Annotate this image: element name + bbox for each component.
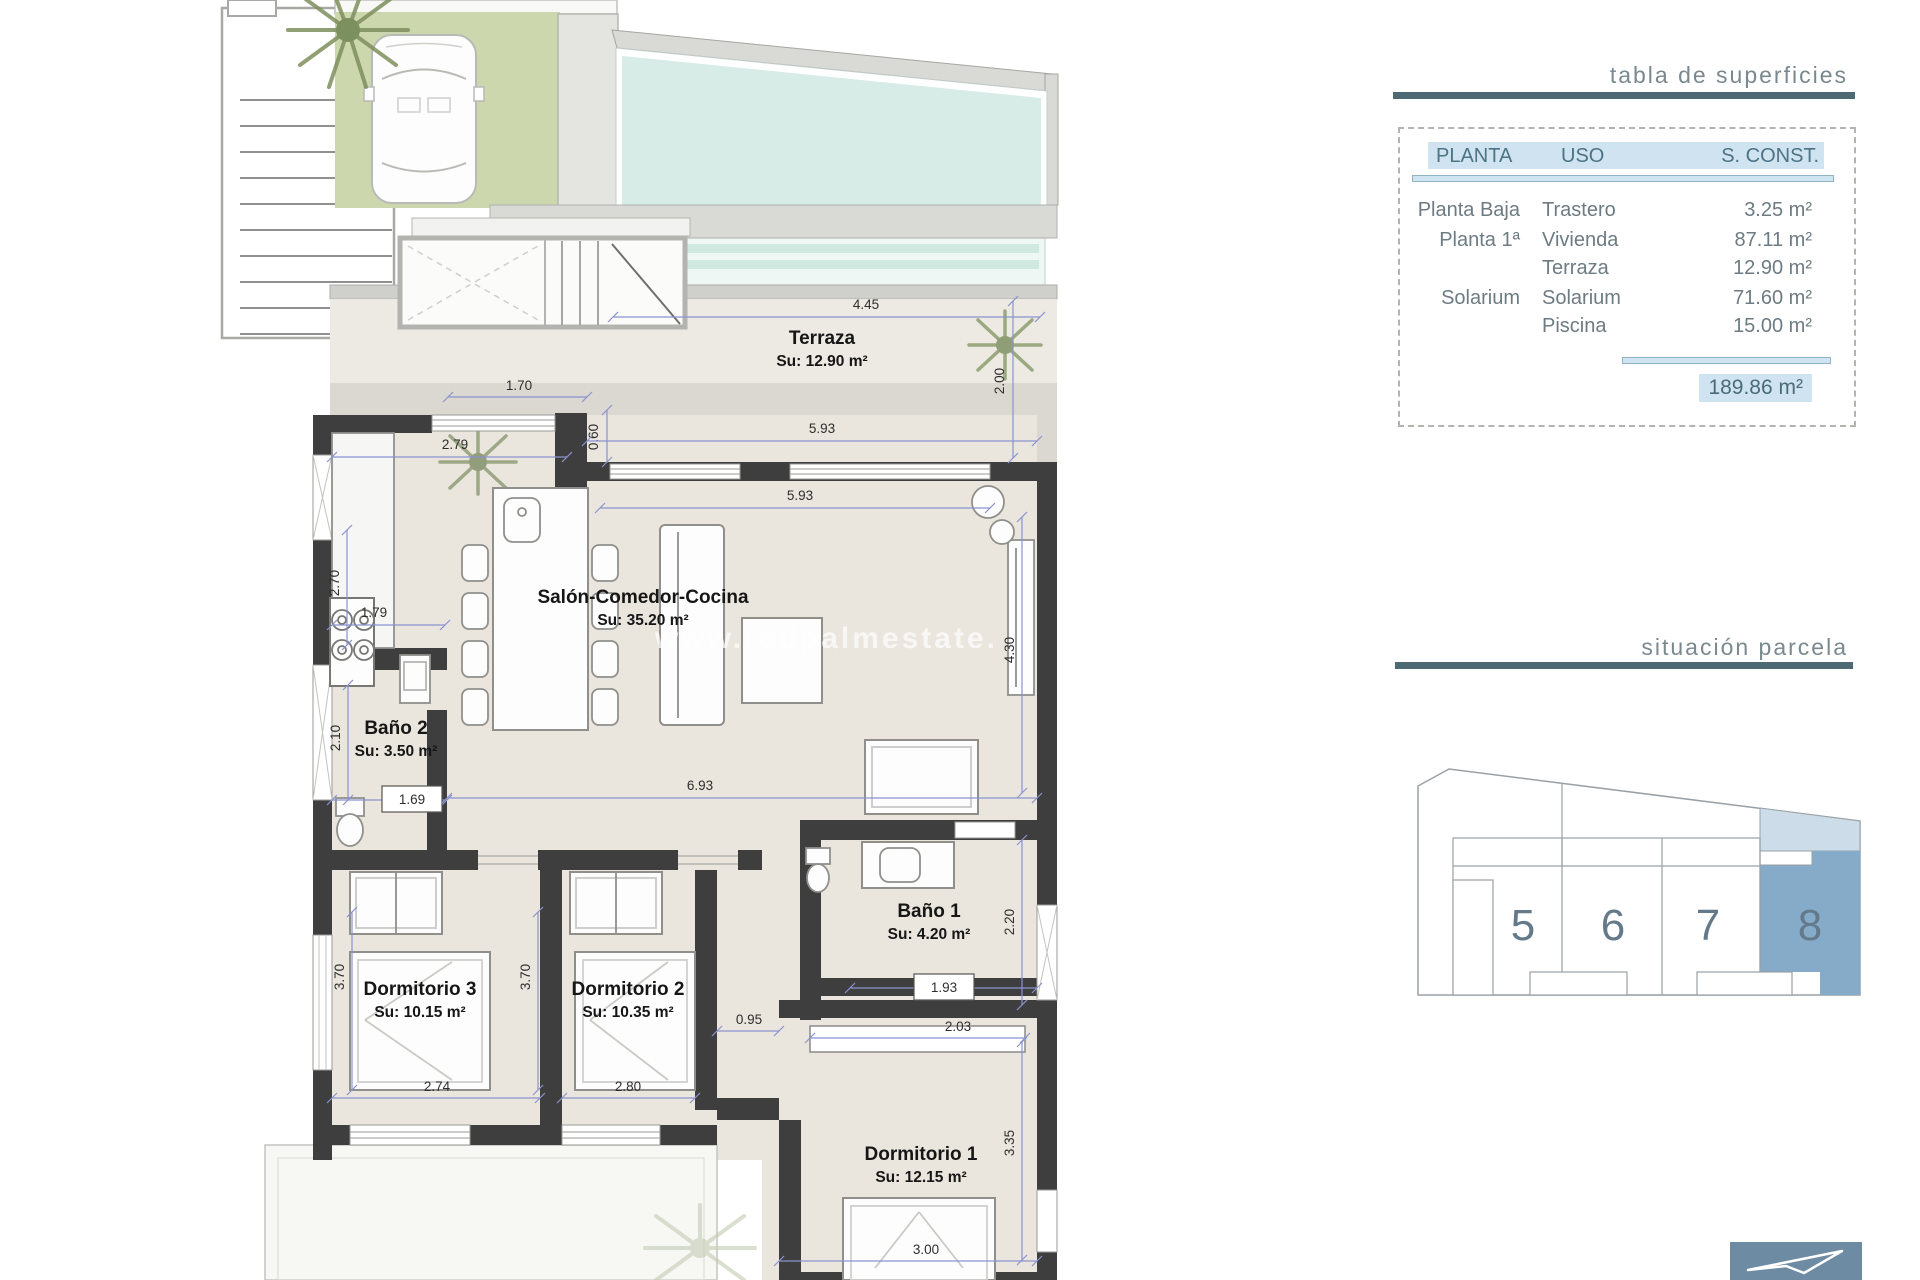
surface-row: Planta 1ªVivienda87.11 m² [1400, 229, 1854, 253]
dimension-label: 2.80 [615, 1079, 641, 1094]
plot-number: 6 [1601, 901, 1625, 950]
surface-cell: 15.00 m² [1733, 315, 1812, 338]
dimension-label: 2.03 [945, 1019, 971, 1034]
room-area: Su: 12.90 m² [776, 353, 867, 370]
surface-table-title: tabla de superficies [1610, 62, 1848, 89]
surface-cell: Solarium [1400, 287, 1520, 310]
room-area: Su: 10.35 m² [582, 1004, 673, 1021]
bed-icon [575, 952, 695, 1090]
header-sconst: S. CONST. [1721, 145, 1819, 168]
floorplan-page: 4.452.001.700.605.935.932.792.701.792.10… [0, 0, 1920, 1280]
parcel-diagram: 5678 [1418, 769, 1860, 995]
header-rule [1412, 175, 1834, 182]
parcel-title-rule [1395, 662, 1853, 669]
dimension-label: 3.70 [332, 964, 347, 990]
shower-icon [865, 740, 978, 814]
surface-row: Terraza12.90 m² [1400, 257, 1854, 281]
dimension-label: 0.95 [736, 1012, 762, 1027]
pool [612, 30, 1058, 205]
dimension-label: 4.45 [853, 297, 879, 312]
surface-cell: 71.60 m² [1733, 287, 1812, 310]
surface-cell: Planta Baja [1400, 199, 1520, 222]
dimension-label: 4.30 [1002, 637, 1017, 663]
surface-cell: Solarium [1542, 287, 1621, 310]
dimension-label: 3.35 [1002, 1130, 1017, 1156]
rear-terrace [265, 1145, 717, 1280]
surface-cell: 87.11 m² [1735, 229, 1812, 252]
surface-cell: Vivienda [1542, 229, 1618, 252]
parcel-title: situación parcela [1641, 634, 1848, 661]
room-area: Su: 12.15 m² [875, 1169, 966, 1186]
dimension-label: 2.20 [1002, 909, 1017, 935]
dimension-label: 2.74 [424, 1079, 451, 1094]
bed-icon [350, 952, 490, 1090]
surface-cell: 12.90 m² [1733, 257, 1812, 280]
room-name: Salón-Comedor-Cocina [537, 587, 749, 608]
surface-table: PLANTA USO S. CONST. Planta BajaTrastero… [1398, 127, 1856, 427]
plot-number: 7 [1696, 901, 1720, 950]
toilet-icon [806, 848, 830, 864]
car [364, 35, 484, 203]
total-area: 189.86 m² [1699, 374, 1812, 402]
dimension-label: 2.79 [442, 437, 468, 452]
surface-row: Planta BajaTrastero3.25 m² [1400, 199, 1854, 223]
room-area: Su: 3.50 m² [355, 743, 438, 760]
surface-cell: Planta 1ª [1400, 229, 1520, 252]
dimension-label: 6.93 [687, 778, 713, 793]
total-rule [1622, 357, 1831, 364]
header-uso: USO [1561, 145, 1604, 168]
surface-row: Piscina15.00 m² [1400, 315, 1854, 339]
watermark-text: www.redpalmestate. [654, 622, 998, 655]
plot-number: 8 [1798, 901, 1822, 950]
plot-number: 5 [1511, 901, 1535, 950]
room-name: Dormitorio 2 [572, 979, 685, 1000]
dimension-label: 2.10 [328, 725, 343, 751]
side-table-icon [990, 520, 1014, 544]
room-area: Su: 10.15 m² [374, 1004, 465, 1021]
room-name: Terraza [789, 328, 856, 349]
header-planta: PLANTA [1436, 145, 1512, 168]
room-area: Su: 4.20 m² [888, 926, 971, 943]
surface-row: SolariumSolarium71.60 m² [1400, 287, 1854, 311]
brand-logo [1730, 1242, 1862, 1280]
dimension-label: 1.69 [399, 792, 425, 807]
room-name: Dormitorio 1 [865, 1144, 978, 1165]
room-name: Baño 2 [364, 718, 427, 739]
porch-floor [330, 383, 1057, 415]
terrace-step [412, 218, 690, 236]
dimension-label: 5.93 [809, 421, 835, 436]
paper-plane-icon [1730, 1242, 1862, 1280]
bed-icon [843, 1198, 995, 1280]
dimension-label: 3.00 [913, 1242, 939, 1257]
title-rule [1393, 92, 1855, 99]
room-name: Dormitorio 3 [364, 979, 477, 1000]
dimension-label: 2.00 [992, 368, 1007, 394]
dimension-label: 5.93 [787, 488, 813, 503]
trastero-box [400, 238, 685, 327]
side-table-icon [972, 486, 1004, 518]
surface-cell: Terraza [1542, 257, 1609, 280]
dimension-label: 1.70 [506, 378, 532, 393]
room-name: Baño 1 [897, 901, 961, 922]
dimension-label: 1.79 [361, 605, 387, 620]
dimension-label: 1.93 [931, 980, 957, 995]
dimension-label: 0.60 [586, 424, 601, 450]
walkway [558, 14, 618, 206]
dimension-label: 2.70 [327, 570, 342, 596]
surface-cell: Piscina [1542, 315, 1606, 338]
surface-cell: 3.25 m² [1744, 199, 1812, 222]
surface-cell: Trastero [1542, 199, 1616, 222]
dimension-label: 3.70 [518, 964, 533, 990]
surface-table-header: PLANTA USO S. CONST. [1428, 142, 1824, 169]
